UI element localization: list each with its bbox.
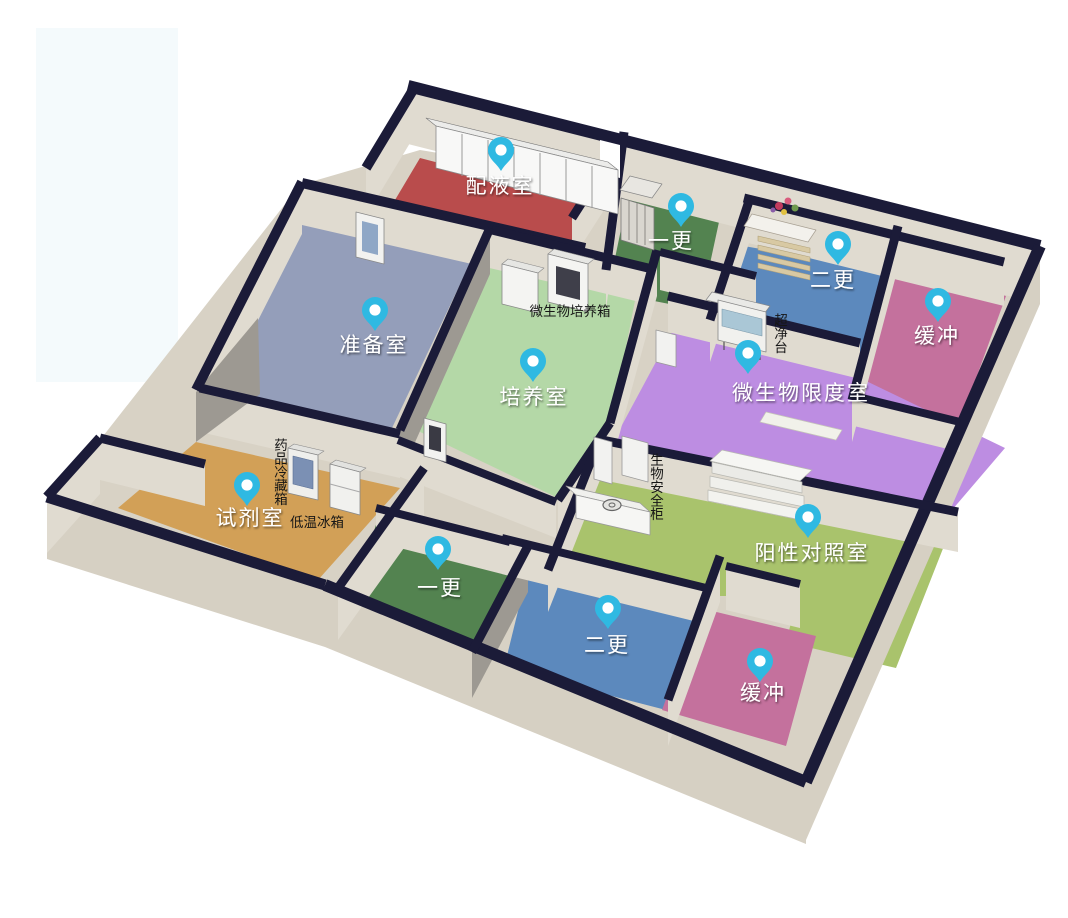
- door-yangxing-west: [622, 436, 648, 482]
- floorplan-canvas: 微生物培养箱 超净台 药品冷藏箱 低温冰箱 生物安全柜: [0, 0, 1068, 918]
- room-label-ergeng-bottom: 二更: [584, 634, 630, 657]
- room-label-huanchong-bottom: 缓冲: [740, 682, 786, 705]
- room-label-shijishi: 试剂室: [216, 507, 285, 530]
- equipment-label-chaojingtai: 超净台: [774, 313, 788, 355]
- room-label-peiyangshi: 培养室: [500, 386, 569, 409]
- watermark-patch: [36, 28, 178, 382]
- room-label-peiyeshi: 配液室: [466, 175, 535, 198]
- room-label-huanchong-top: 缓冲: [914, 325, 960, 348]
- equipment-label-shengwu-anquangui: 生物安全柜: [650, 453, 664, 522]
- lab-floorplan-svg: 微生物培养箱 超净台 药品冷藏箱 低温冰箱 生物安全柜: [0, 0, 1068, 918]
- door-zhunbeishi: [356, 212, 384, 264]
- equipment-label-diwen-bingxiang: 低温冰箱: [290, 515, 344, 530]
- room-label-weishengwu-xiandushi: 微生物限度室: [732, 382, 870, 405]
- room-label-yigeng-top: 一更: [648, 230, 694, 253]
- door-xiandushi-west: [656, 330, 676, 367]
- wall-ac-panel: [594, 437, 612, 484]
- equipment-label-yaopin-lengcangxiang: 药品冷藏箱: [274, 438, 288, 507]
- equipment-label-weishengwu-peiyangxiang: 微生物培养箱: [530, 304, 611, 319]
- door-peiyangshi-west: [424, 418, 446, 462]
- room-label-yigeng-bottom: 一更: [417, 577, 463, 600]
- room-label-zhunbeishi: 准备室: [340, 334, 409, 357]
- room-label-ergeng-top: 二更: [810, 269, 856, 292]
- room-label-yangxing-duizhaoshi: 阳性对照室: [755, 542, 870, 565]
